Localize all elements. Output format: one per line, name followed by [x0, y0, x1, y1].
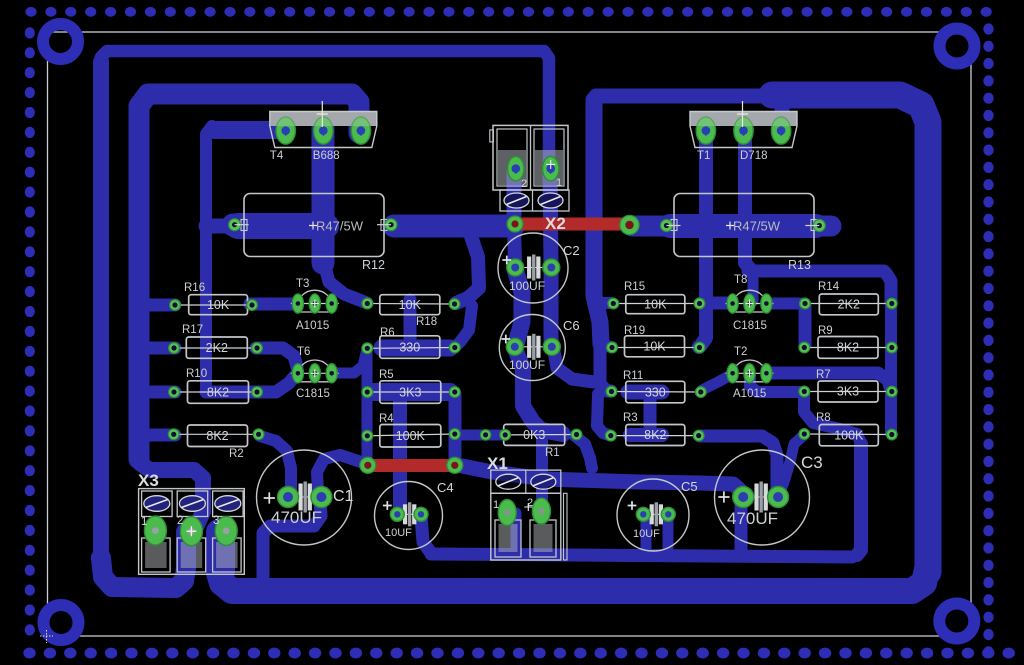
svg-text:3K3: 3K3 [399, 385, 421, 399]
svg-text:100UF: 100UF [509, 358, 545, 372]
svg-text:R13: R13 [788, 258, 811, 272]
svg-text:C1815: C1815 [296, 388, 330, 400]
svg-text:R47/5W: R47/5W [316, 219, 364, 234]
svg-text:R6: R6 [380, 327, 395, 339]
svg-text:T2: T2 [734, 346, 747, 358]
svg-text:C1815: C1815 [733, 320, 767, 332]
svg-text:R10: R10 [186, 368, 207, 380]
svg-text:R1: R1 [545, 447, 560, 459]
svg-text:100K: 100K [834, 428, 864, 442]
svg-text:C3: C3 [801, 453, 823, 472]
svg-text:10K: 10K [644, 297, 667, 311]
svg-text:3: 3 [213, 515, 219, 527]
svg-text:1: 1 [556, 177, 562, 189]
svg-text:8K2: 8K2 [837, 341, 859, 355]
svg-text:R2: R2 [229, 448, 244, 460]
svg-text:T3: T3 [296, 278, 309, 290]
svg-text:T4: T4 [270, 150, 284, 162]
svg-text:T1: T1 [697, 150, 710, 162]
svg-text:2: 2 [177, 515, 183, 527]
svg-text:R12: R12 [362, 258, 385, 272]
svg-text:T8: T8 [734, 274, 747, 286]
svg-text:2: 2 [521, 178, 527, 190]
svg-text:8K2: 8K2 [206, 429, 228, 443]
svg-text:B688: B688 [313, 150, 340, 162]
svg-text:100UF: 100UF [509, 279, 545, 293]
svg-text:330: 330 [645, 385, 666, 399]
svg-text:10K: 10K [207, 298, 230, 312]
svg-text:R3: R3 [623, 412, 638, 424]
svg-text:A1015: A1015 [733, 388, 766, 400]
svg-text:100K: 100K [396, 429, 426, 443]
svg-text:10K: 10K [399, 298, 422, 312]
svg-text:C6: C6 [563, 318, 580, 333]
svg-text:C5: C5 [681, 479, 698, 494]
svg-text:1: 1 [141, 516, 147, 528]
svg-text:C1: C1 [333, 488, 354, 505]
svg-text:D718: D718 [740, 150, 768, 162]
svg-text:330: 330 [399, 340, 420, 354]
svg-text:X3: X3 [138, 471, 159, 490]
svg-text:R11: R11 [623, 370, 643, 382]
svg-text:R17: R17 [182, 324, 203, 336]
svg-text:R4: R4 [379, 413, 394, 425]
svg-text:2K2: 2K2 [838, 298, 860, 312]
svg-text:10UF: 10UF [633, 528, 660, 540]
svg-text:R5: R5 [379, 369, 394, 381]
svg-text:R47/5W: R47/5W [733, 219, 781, 234]
svg-text:C4: C4 [437, 480, 454, 495]
svg-text:T6: T6 [297, 346, 310, 358]
svg-text:R8: R8 [816, 412, 831, 424]
svg-text:3K3: 3K3 [837, 385, 859, 399]
svg-text:X2: X2 [545, 214, 566, 233]
svg-text:470UF: 470UF [727, 509, 778, 528]
svg-text:R7: R7 [816, 369, 831, 381]
svg-text:8K2: 8K2 [207, 385, 229, 399]
svg-text:8K2: 8K2 [644, 428, 666, 442]
svg-text:R15: R15 [624, 281, 645, 293]
svg-text:2K2: 2K2 [206, 341, 228, 355]
svg-text:1: 1 [493, 499, 499, 511]
svg-text:R9: R9 [818, 325, 833, 337]
svg-text:R14: R14 [818, 281, 840, 293]
svg-text:R18: R18 [416, 316, 437, 328]
svg-text:10K: 10K [643, 340, 666, 354]
svg-text:A1015: A1015 [296, 320, 329, 332]
svg-text:0K3: 0K3 [523, 428, 545, 442]
svg-text:C2: C2 [563, 243, 580, 258]
svg-text:10UF: 10UF [385, 527, 412, 539]
svg-text:470UF: 470UF [271, 508, 322, 527]
svg-text:R16: R16 [184, 282, 205, 294]
svg-text:R19: R19 [624, 325, 645, 337]
